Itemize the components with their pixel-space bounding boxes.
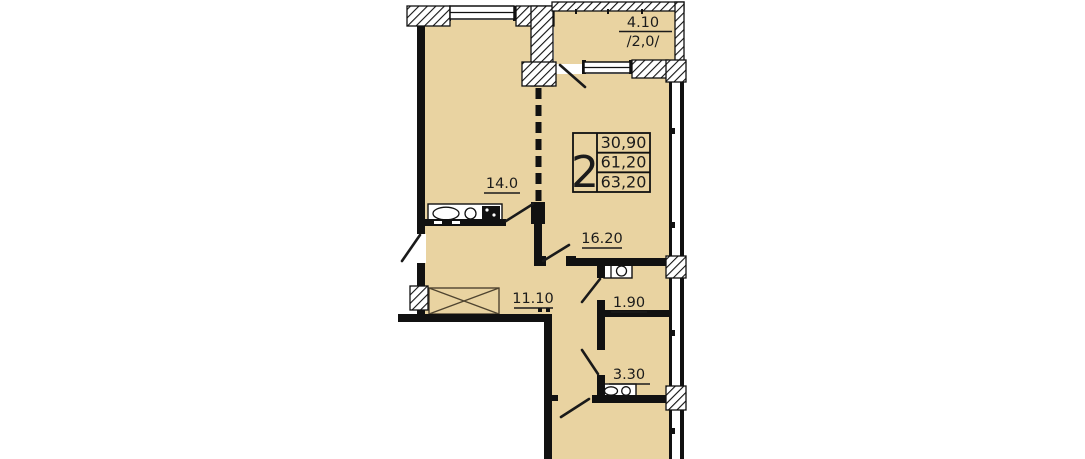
top-left-wall-block bbox=[407, 6, 450, 26]
balcony-bedroom-wall bbox=[632, 60, 668, 78]
kitchen-living-area-label: 14.0 bbox=[486, 176, 518, 192]
hallway-bottom-wall bbox=[398, 314, 552, 322]
corridor-left-wall bbox=[544, 314, 552, 459]
balcony-window bbox=[584, 62, 630, 73]
bedroom-area-label: 16.20 bbox=[581, 231, 623, 247]
bathroom-area-label: 3.30 bbox=[613, 367, 645, 383]
toilet bbox=[604, 264, 632, 278]
kitchen-window bbox=[450, 6, 514, 19]
bathroom-bottom-wall bbox=[592, 395, 670, 403]
bedroom-top-left-block bbox=[522, 62, 556, 86]
hall-bedroom-wall-stub bbox=[534, 220, 542, 260]
hallway-area-label: 11.10 bbox=[512, 291, 554, 307]
left-wall-block-bottom bbox=[410, 286, 428, 310]
total-area-value: 63,20 bbox=[601, 173, 647, 192]
right-wall-block-top bbox=[666, 60, 686, 82]
left-wall-upper bbox=[417, 16, 425, 236]
living-area-value: 30,90 bbox=[601, 133, 647, 152]
floor-area-value: 61,20 bbox=[601, 153, 647, 172]
floor-plan-canvas: 2 30,90 61,20 63,20 14.0 16.20 11.10 1.9… bbox=[0, 0, 1085, 459]
bathroom-left-wall-top bbox=[597, 317, 605, 350]
balcony-top-band bbox=[552, 2, 684, 11]
room-bottom-floor bbox=[546, 400, 672, 459]
corridor-floor bbox=[546, 316, 602, 402]
right-wall-block-mid bbox=[666, 256, 686, 278]
right-wall-block-low bbox=[666, 386, 686, 410]
balcony-area-label: 4.10 bbox=[627, 15, 659, 31]
wc-left-wall-top bbox=[597, 262, 605, 278]
rooms-count-value: 2 bbox=[571, 147, 599, 198]
room-kitchen-living-floor bbox=[424, 20, 538, 224]
floor-plan-page: 2 30,90 61,20 63,20 14.0 16.20 11.10 1.9… bbox=[0, 0, 1085, 459]
wc-area-label: 1.90 bbox=[613, 295, 645, 311]
balcony-reduced-area-label: /2,0/ bbox=[627, 34, 660, 50]
balcony-right-band bbox=[675, 2, 684, 64]
